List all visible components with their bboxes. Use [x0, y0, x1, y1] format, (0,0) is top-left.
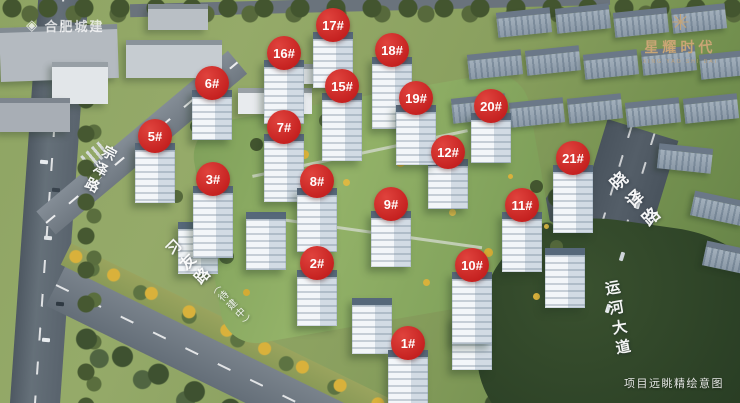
- building-21: [553, 165, 593, 233]
- project-logo-name: 星耀时代: [643, 37, 718, 57]
- building-badge-12: 12#: [431, 135, 465, 169]
- building-badge-17: 17#: [316, 8, 350, 42]
- building-badge-2: 2#: [300, 246, 334, 280]
- building-badge-10: 10#: [455, 248, 489, 282]
- building-badge-9: 9#: [374, 187, 408, 221]
- building-badge-15: 15#: [325, 69, 359, 103]
- building-3: [193, 186, 233, 258]
- project-logo: ✳ 星耀时代 XING YAO SHI DAI: [643, 12, 718, 65]
- building-badge-20: 20#: [474, 89, 508, 123]
- building-badge-3: 3#: [196, 162, 230, 196]
- building-badge-1: 1#: [391, 326, 425, 360]
- building-badge-16: 16#: [267, 36, 301, 70]
- building-badge-7: 7#: [267, 110, 301, 144]
- developer-logo-text: 合肥城建: [45, 16, 105, 35]
- building-10: [452, 272, 492, 344]
- aerial-masterplan-render: 1#2#3#5#6#7#8#9#10#11#12#15#16#17#18#19#…: [0, 0, 740, 403]
- building-badge-18: 18#: [375, 33, 409, 67]
- building-badge-6: 6#: [195, 66, 229, 100]
- building-badge-19: 19#: [399, 81, 433, 115]
- building-15: [322, 93, 362, 161]
- project-emblem-icon: ✳: [643, 12, 718, 34]
- render-caption: 项目远眺精绘意图: [624, 375, 724, 391]
- project-logo-subtext: XING YAO SHI DAI: [643, 59, 718, 65]
- building-badge-21: 21#: [556, 141, 590, 175]
- building-badge-8: 8#: [300, 164, 334, 198]
- building-badge-11: 11#: [505, 188, 539, 222]
- developer-logo-icon: ◈: [26, 18, 38, 33]
- building-badge-5: 5#: [138, 119, 172, 153]
- developer-logo: ◈ 合肥城建: [26, 16, 105, 35]
